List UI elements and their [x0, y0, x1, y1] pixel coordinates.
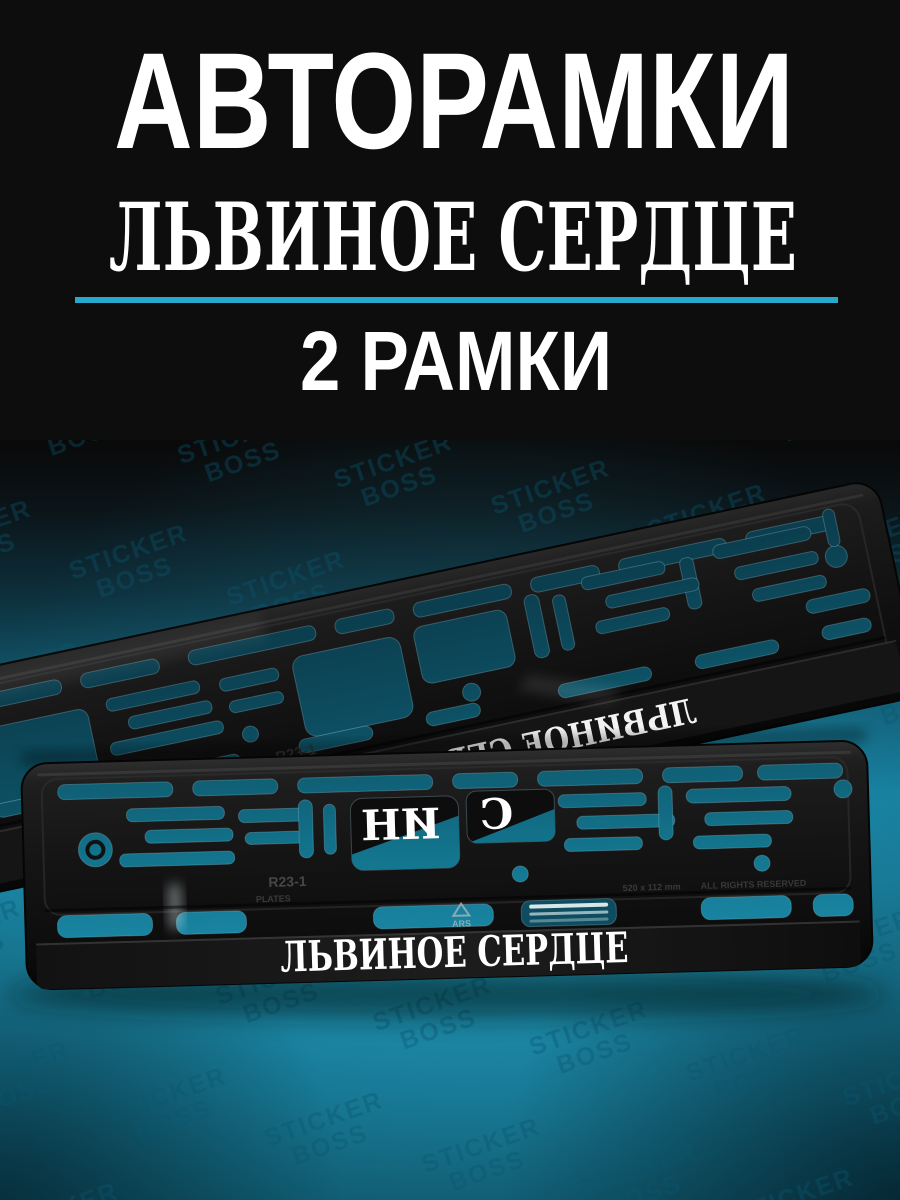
frame-hole	[120, 851, 235, 867]
frame-hole	[701, 895, 792, 920]
frame-hole	[193, 779, 278, 796]
frame-hole	[58, 782, 173, 800]
page-title: АВТОРАМКИ	[114, 25, 794, 178]
frame-hole	[512, 866, 528, 882]
peek-hole-right: С	[466, 788, 555, 843]
peek-fragment-right: С	[479, 789, 514, 839]
frame-hole	[686, 786, 791, 803]
product-photo-canvas: STICKER BOSS STICKER BOSS АВТОРАМКИ ЛЬВИ…	[0, 0, 900, 1200]
frame-hole	[658, 786, 674, 840]
front-frame-print: ЛЬВИНОЕ СЕРДЦЕ	[280, 923, 629, 982]
size-emboss: 520 x 112 mm	[623, 881, 681, 893]
front-frame: ИН С	[21, 740, 873, 990]
ars-logo-text: ARS	[452, 918, 471, 929]
frame-hole	[145, 828, 233, 843]
peek-fragment-left: ИН	[360, 799, 441, 850]
frame-hole	[705, 810, 793, 825]
frame-hole	[57, 913, 153, 938]
count-label: 2 РАМКИ	[300, 314, 612, 408]
frame-hole	[834, 780, 852, 798]
frame-hole	[757, 763, 842, 780]
frame-hole	[754, 855, 770, 871]
plates-emboss: PLATES	[256, 893, 291, 904]
frame-hole	[126, 806, 224, 822]
frame-hole	[813, 894, 854, 917]
frame-hole	[564, 837, 642, 852]
divider-line	[75, 297, 838, 303]
frame-hole	[558, 792, 646, 807]
frame-hole	[452, 772, 517, 789]
frame-hole	[662, 766, 742, 783]
emblem-hole	[78, 832, 113, 867]
product-card: STICKER BOSS STICKER BOSS АВТОРАМКИ ЛЬВИ…	[0, 0, 900, 1200]
frame-hole	[245, 831, 303, 845]
frame-hole	[238, 808, 303, 823]
frame-hole	[298, 800, 314, 858]
frame-hole	[323, 804, 336, 854]
product-photo: R23-1 ЛЬВИНОЕ СЕРДЦЕ	[0, 440, 900, 1200]
reflective-clip	[521, 898, 617, 927]
frame-hole	[693, 834, 771, 849]
page-subtitle: ЛЬВИНОЕ СЕРДЦЕ	[109, 183, 797, 293]
frame-hole	[373, 904, 494, 929]
frame-hole	[297, 774, 432, 793]
peek-hole-left: ИН	[350, 796, 460, 871]
frame-hole	[176, 911, 247, 935]
front-frame-model-emboss: R23-1	[268, 873, 307, 890]
frame-hole	[537, 769, 642, 787]
